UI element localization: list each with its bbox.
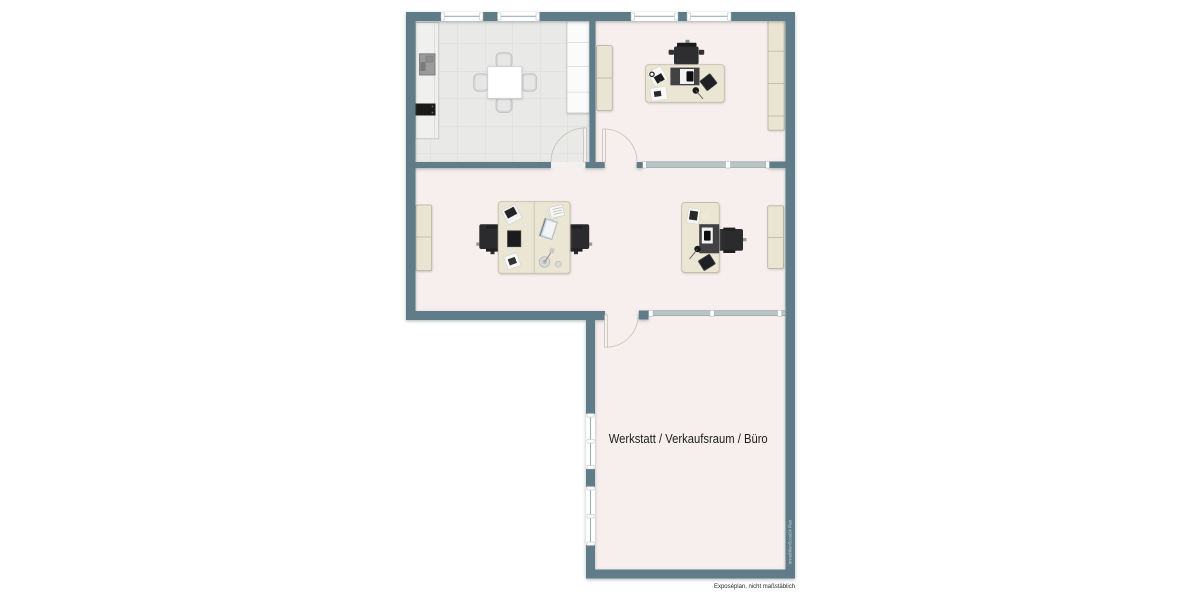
svg-text:Werkstatt / Verkaufsraum / Bür: Werkstatt / Verkaufsraum / Büro xyxy=(609,431,768,446)
svg-text:Exposéplan, nicht maßstäblich: Exposéplan, nicht maßstäblich xyxy=(714,583,796,590)
svg-text:ImmobilienScout24 Plan: ImmobilienScout24 Plan xyxy=(788,519,793,564)
